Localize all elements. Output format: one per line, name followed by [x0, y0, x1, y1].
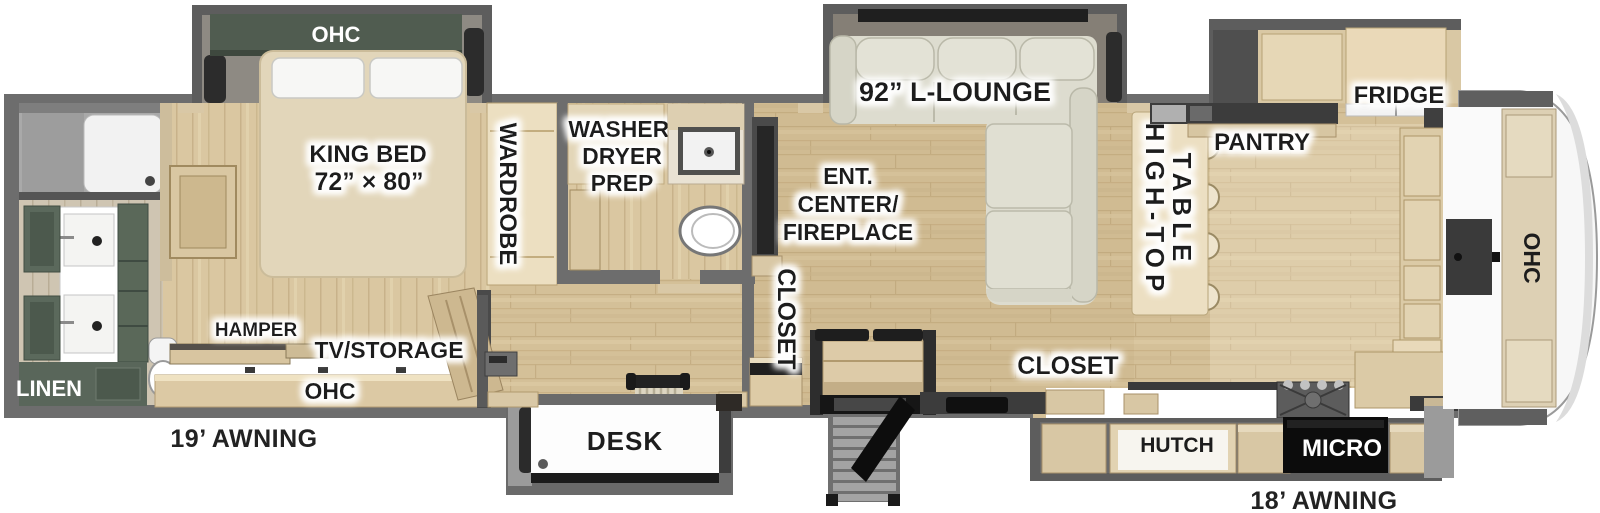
svg-text:LINEN: LINEN	[16, 376, 82, 401]
svg-text:72” × 80”: 72” × 80”	[314, 168, 423, 196]
svg-text:OHC: OHC	[304, 378, 355, 404]
svg-text:CLOSET: CLOSET	[1017, 352, 1118, 380]
svg-text:PREP: PREP	[591, 170, 654, 196]
svg-text:TV/STORAGE: TV/STORAGE	[314, 337, 463, 363]
svg-text:TABLE: TABLE	[1167, 153, 1197, 268]
svg-text:19’ AWNING: 19’ AWNING	[170, 425, 317, 453]
svg-text:DESK: DESK	[587, 426, 663, 456]
svg-text:HIGH-TOP: HIGH-TOP	[1140, 123, 1170, 298]
svg-text:HAMPER: HAMPER	[215, 320, 298, 341]
svg-text:PANTRY: PANTRY	[1214, 129, 1310, 156]
svg-text:OHC: OHC	[1519, 232, 1545, 283]
svg-text:CENTER/: CENTER/	[798, 191, 900, 217]
svg-text:WARDROBE: WARDROBE	[494, 123, 521, 266]
svg-text:HUTCH: HUTCH	[1140, 434, 1214, 457]
svg-text:FRIDGE: FRIDGE	[1354, 82, 1445, 109]
svg-text:FIREPLACE: FIREPLACE	[783, 219, 913, 245]
svg-text:WASHER/: WASHER/	[568, 116, 676, 142]
svg-text:ENT.: ENT.	[823, 163, 873, 189]
svg-text:18’ AWNING: 18’ AWNING	[1250, 487, 1397, 513]
svg-text:KING BED: KING BED	[309, 141, 426, 168]
svg-text:MICRO: MICRO	[1302, 435, 1382, 462]
svg-text:DRYER: DRYER	[582, 143, 662, 169]
svg-text:CLOSET: CLOSET	[772, 268, 800, 369]
svg-text:92” L-LOUNGE: 92” L-LOUNGE	[859, 77, 1051, 107]
svg-text:OHC: OHC	[312, 22, 361, 47]
